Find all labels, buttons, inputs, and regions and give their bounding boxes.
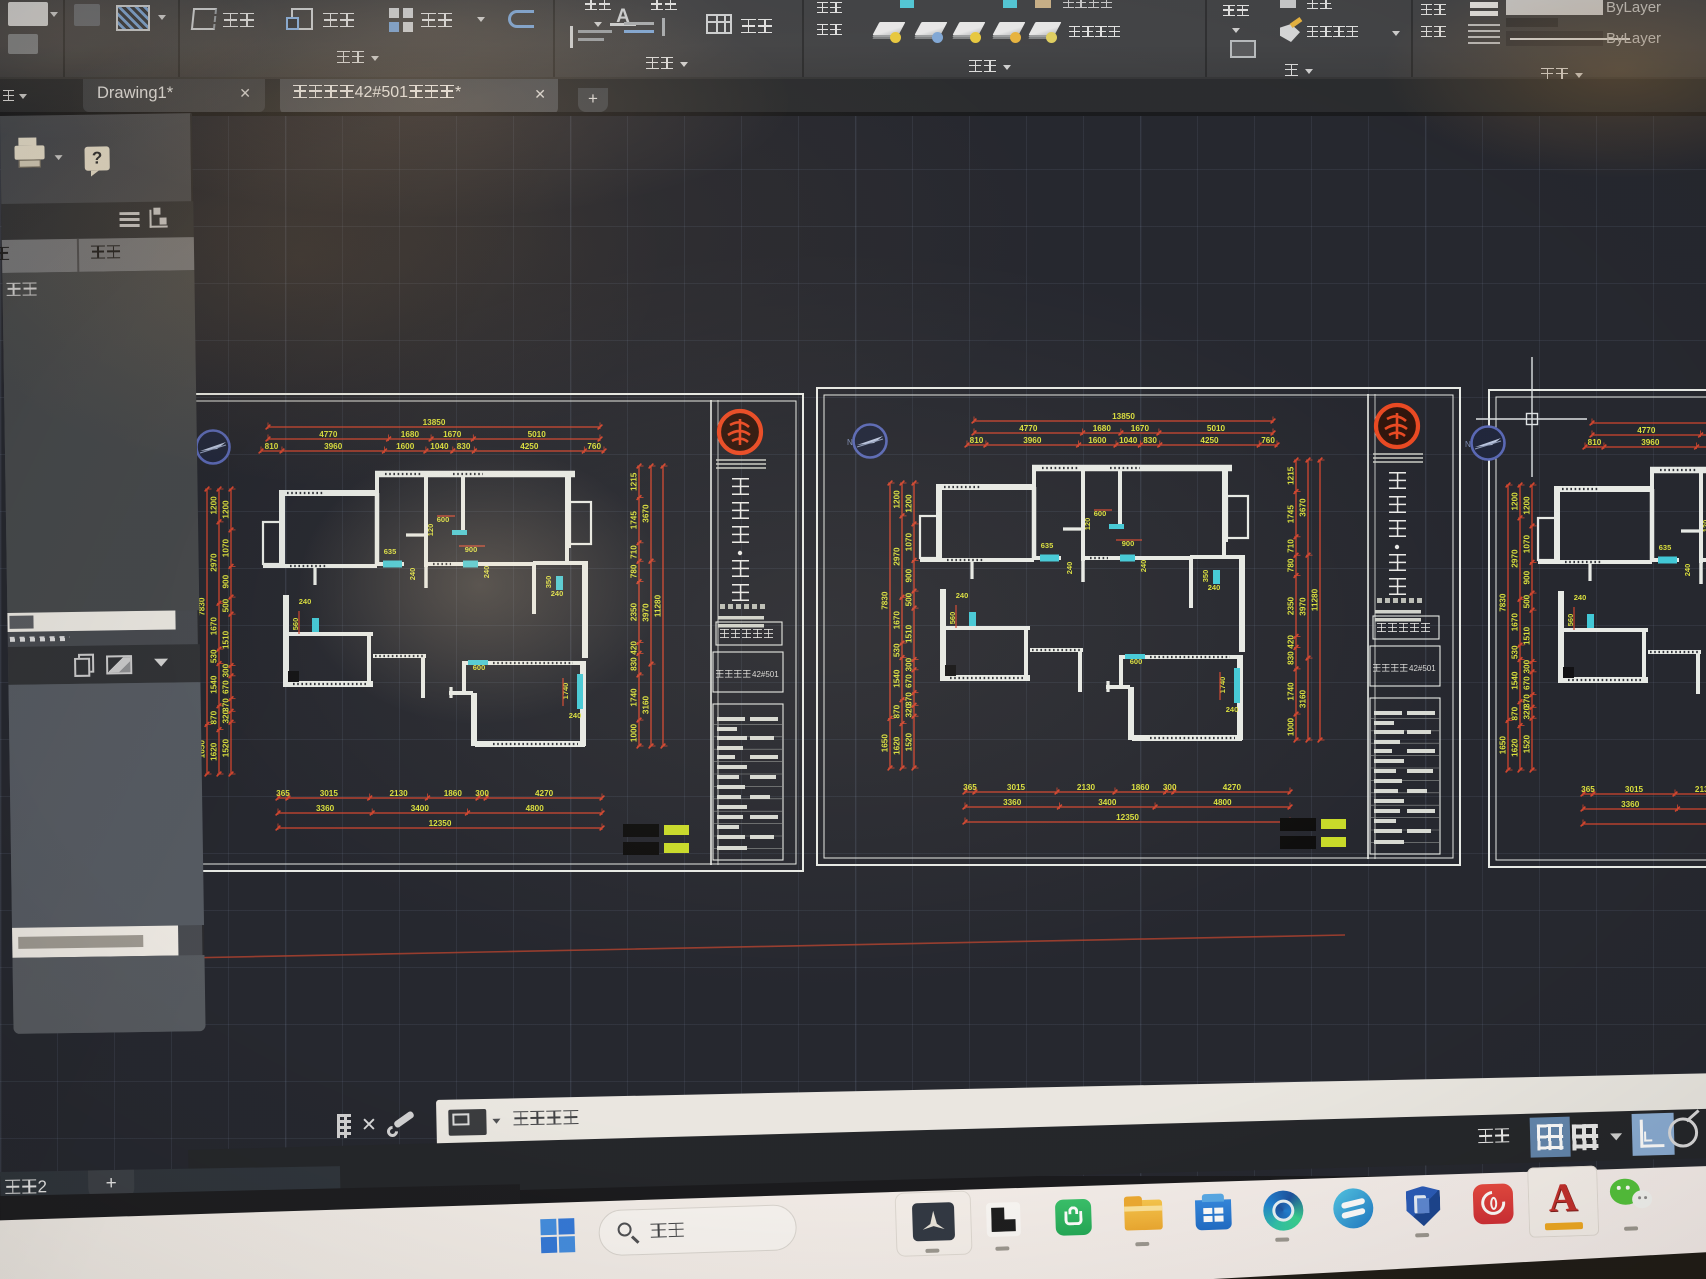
svg-text:1740: 1740 [630, 688, 639, 707]
svg-text:240: 240 [956, 591, 969, 600]
svg-text:1540: 1540 [210, 675, 219, 694]
svg-text:3670: 3670 [1299, 498, 1308, 517]
svg-text:320: 320 [905, 703, 914, 717]
svg-text:240: 240 [569, 711, 582, 720]
svg-text:810: 810 [1588, 438, 1602, 447]
svg-text:870: 870 [1511, 706, 1520, 720]
svg-text:2130: 2130 [1695, 785, 1706, 794]
svg-text:5010: 5010 [528, 430, 547, 439]
svg-text:1510: 1510 [222, 630, 231, 649]
svg-text:240: 240 [551, 589, 564, 598]
svg-text:370: 370 [905, 692, 914, 706]
svg-text:1620: 1620 [210, 742, 219, 761]
svg-text:500: 500 [905, 592, 914, 606]
svg-text:1520: 1520 [905, 733, 914, 752]
svg-text:13850: 13850 [423, 418, 446, 427]
svg-text:830: 830 [457, 442, 471, 451]
svg-text:300: 300 [905, 657, 914, 671]
svg-text:635: 635 [1659, 543, 1672, 552]
svg-text:1540: 1540 [1511, 671, 1520, 690]
svg-text:1650: 1650 [881, 734, 890, 753]
svg-text:3970: 3970 [642, 603, 651, 622]
svg-text:760: 760 [1261, 436, 1275, 445]
svg-text:1860: 1860 [444, 789, 463, 798]
svg-text:4800: 4800 [526, 804, 545, 813]
svg-text:240: 240 [1226, 705, 1239, 714]
svg-text:1540: 1540 [893, 669, 902, 688]
svg-text:710: 710 [1287, 539, 1296, 553]
svg-text:42#501: 42#501 [1409, 664, 1436, 673]
svg-text:365: 365 [963, 783, 977, 792]
svg-text:240: 240 [1139, 560, 1148, 573]
svg-text:1070: 1070 [1523, 535, 1532, 554]
svg-text:2970: 2970 [210, 553, 219, 572]
svg-text:1040: 1040 [430, 442, 449, 451]
svg-text:350: 350 [1201, 570, 1210, 583]
svg-text:240: 240 [482, 566, 491, 579]
svg-text:240: 240 [1683, 564, 1692, 577]
svg-text:780: 780 [1287, 558, 1296, 572]
svg-text:420: 420 [630, 641, 639, 655]
svg-text:12350: 12350 [429, 819, 452, 828]
svg-text:900: 900 [222, 574, 231, 588]
svg-text:670: 670 [222, 680, 231, 694]
svg-text:3015: 3015 [320, 789, 339, 798]
svg-text:365: 365 [276, 789, 290, 798]
svg-text:1670: 1670 [1511, 613, 1520, 632]
svg-text:635: 635 [1041, 541, 1054, 550]
svg-text:420: 420 [1287, 635, 1296, 649]
svg-text:120: 120 [426, 524, 435, 537]
svg-text:600: 600 [473, 663, 486, 672]
svg-text:300: 300 [1163, 783, 1177, 792]
svg-text:1200: 1200 [893, 490, 902, 509]
svg-text:1740: 1740 [1287, 682, 1296, 701]
svg-text:240: 240 [1065, 562, 1074, 575]
svg-text:2970: 2970 [893, 547, 902, 566]
svg-text:240: 240 [408, 568, 417, 581]
svg-text:780: 780 [630, 564, 639, 578]
svg-text:1070: 1070 [222, 539, 231, 558]
svg-text:240: 240 [1574, 593, 1587, 602]
svg-text:3015: 3015 [1007, 783, 1026, 792]
svg-text:4770: 4770 [319, 430, 338, 439]
svg-text:830: 830 [630, 657, 639, 671]
svg-text:11280: 11280 [654, 594, 663, 617]
svg-text:12350: 12350 [1116, 813, 1139, 822]
svg-text:7830: 7830 [881, 591, 890, 610]
svg-text:3360: 3360 [1003, 798, 1022, 807]
svg-text:1670: 1670 [893, 611, 902, 630]
svg-text:240: 240 [299, 597, 312, 606]
svg-text:1200: 1200 [222, 500, 231, 519]
svg-text:300: 300 [222, 663, 231, 677]
svg-text:635: 635 [384, 547, 397, 556]
svg-text:120: 120 [1083, 518, 1092, 531]
svg-text:3360: 3360 [1621, 800, 1640, 809]
svg-text:42#501: 42#501 [752, 670, 779, 679]
svg-text:760: 760 [587, 442, 601, 451]
svg-text:3960: 3960 [1641, 438, 1660, 447]
svg-text:3400: 3400 [1098, 798, 1117, 807]
svg-text:670: 670 [905, 674, 914, 688]
svg-text:N: N [1465, 440, 1471, 449]
svg-text:370: 370 [222, 698, 231, 712]
svg-text:11280: 11280 [1311, 588, 1320, 611]
svg-text:1600: 1600 [396, 442, 415, 451]
svg-text:500: 500 [222, 598, 231, 612]
svg-text:1215: 1215 [630, 472, 639, 491]
svg-text:1520: 1520 [1523, 735, 1532, 754]
svg-text:350: 350 [544, 576, 553, 589]
svg-text:1745: 1745 [1287, 505, 1296, 524]
svg-text:1200: 1200 [1511, 492, 1520, 511]
svg-text:1510: 1510 [1523, 626, 1532, 645]
svg-text:600: 600 [1130, 657, 1143, 666]
svg-text:530: 530 [1511, 645, 1520, 659]
svg-text:300: 300 [475, 789, 489, 798]
svg-text:1740: 1740 [1218, 677, 1227, 694]
svg-text:370: 370 [1523, 694, 1532, 708]
svg-text:1215: 1215 [1287, 466, 1296, 485]
svg-text:1745: 1745 [630, 511, 639, 530]
svg-text:120: 120 [1701, 520, 1706, 533]
svg-text:500: 500 [1523, 594, 1532, 608]
svg-text:900: 900 [1523, 570, 1532, 584]
svg-text:13850: 13850 [1112, 412, 1135, 421]
svg-text:1000: 1000 [630, 723, 639, 742]
svg-text:3960: 3960 [1023, 436, 1042, 445]
svg-text:1680: 1680 [1093, 424, 1112, 433]
svg-text:870: 870 [893, 704, 902, 718]
svg-text:870: 870 [210, 710, 219, 724]
svg-text:1860: 1860 [1131, 783, 1150, 792]
svg-text:3015: 3015 [1625, 785, 1644, 794]
svg-text:3670: 3670 [642, 504, 651, 523]
svg-text:7830: 7830 [1499, 593, 1508, 612]
svg-text:2350: 2350 [1287, 596, 1296, 615]
svg-text:1510: 1510 [905, 624, 914, 643]
svg-text:2130: 2130 [389, 789, 408, 798]
svg-text:1000: 1000 [1287, 717, 1296, 736]
svg-text:1670: 1670 [1131, 424, 1150, 433]
svg-text:710: 710 [630, 545, 639, 559]
svg-text:1620: 1620 [1511, 738, 1520, 757]
svg-text:1200: 1200 [1523, 496, 1532, 515]
svg-text:1520: 1520 [222, 739, 231, 758]
svg-text:810: 810 [265, 442, 279, 451]
svg-text:240: 240 [1208, 583, 1221, 592]
svg-text:1200: 1200 [210, 496, 219, 515]
svg-text:3400: 3400 [411, 804, 430, 813]
svg-text:2970: 2970 [1511, 549, 1520, 568]
svg-text:4770: 4770 [1019, 424, 1038, 433]
svg-text:1040: 1040 [1119, 436, 1138, 445]
svg-text:1650: 1650 [1499, 736, 1508, 755]
svg-text:670: 670 [1523, 676, 1532, 690]
svg-text:810: 810 [970, 436, 984, 445]
svg-text:1670: 1670 [443, 430, 462, 439]
svg-text:300: 300 [1523, 659, 1532, 673]
svg-text:4800: 4800 [1213, 798, 1232, 807]
svg-text:1200: 1200 [905, 494, 914, 513]
svg-text:530: 530 [210, 649, 219, 663]
svg-text:3360: 3360 [316, 804, 335, 813]
svg-text:830: 830 [1143, 436, 1157, 445]
svg-text:1670: 1670 [210, 617, 219, 636]
svg-text:1740: 1740 [561, 683, 570, 700]
svg-text:365: 365 [1581, 785, 1595, 794]
svg-text:2130: 2130 [1077, 783, 1096, 792]
svg-text:4770: 4770 [1637, 426, 1656, 435]
svg-text:320: 320 [222, 709, 231, 723]
svg-text:900: 900 [905, 568, 914, 582]
svg-text:1070: 1070 [905, 533, 914, 552]
svg-text:4250: 4250 [1200, 436, 1219, 445]
svg-text:5010: 5010 [1207, 424, 1226, 433]
svg-text:1620: 1620 [893, 736, 902, 755]
svg-text:3160: 3160 [642, 695, 651, 714]
svg-text:3970: 3970 [1299, 597, 1308, 616]
svg-text:1600: 1600 [1088, 436, 1107, 445]
svg-text:830: 830 [1287, 651, 1296, 665]
svg-text:320: 320 [1523, 705, 1532, 719]
svg-text:2350: 2350 [630, 602, 639, 621]
svg-text:1680: 1680 [401, 430, 420, 439]
svg-text:3160: 3160 [1299, 689, 1308, 708]
svg-text:4270: 4270 [535, 789, 554, 798]
svg-text:N: N [847, 438, 853, 447]
svg-text:4250: 4250 [520, 442, 539, 451]
svg-text:3960: 3960 [324, 442, 343, 451]
svg-text:530: 530 [893, 643, 902, 657]
svg-text:4270: 4270 [1223, 783, 1242, 792]
